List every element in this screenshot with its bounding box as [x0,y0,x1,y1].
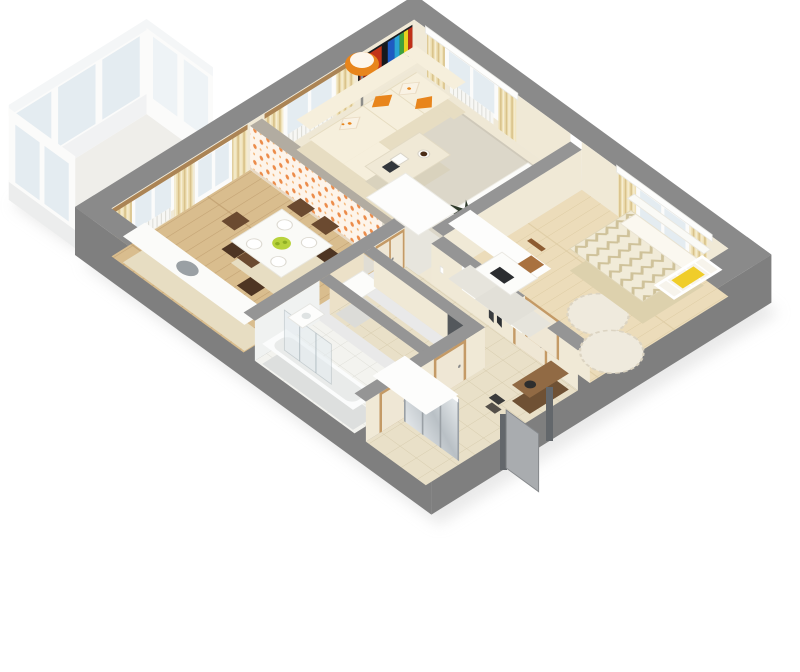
floor-plan-svg [0,0,800,672]
floor-plan-render [0,0,800,672]
door-frame-post [546,387,553,441]
